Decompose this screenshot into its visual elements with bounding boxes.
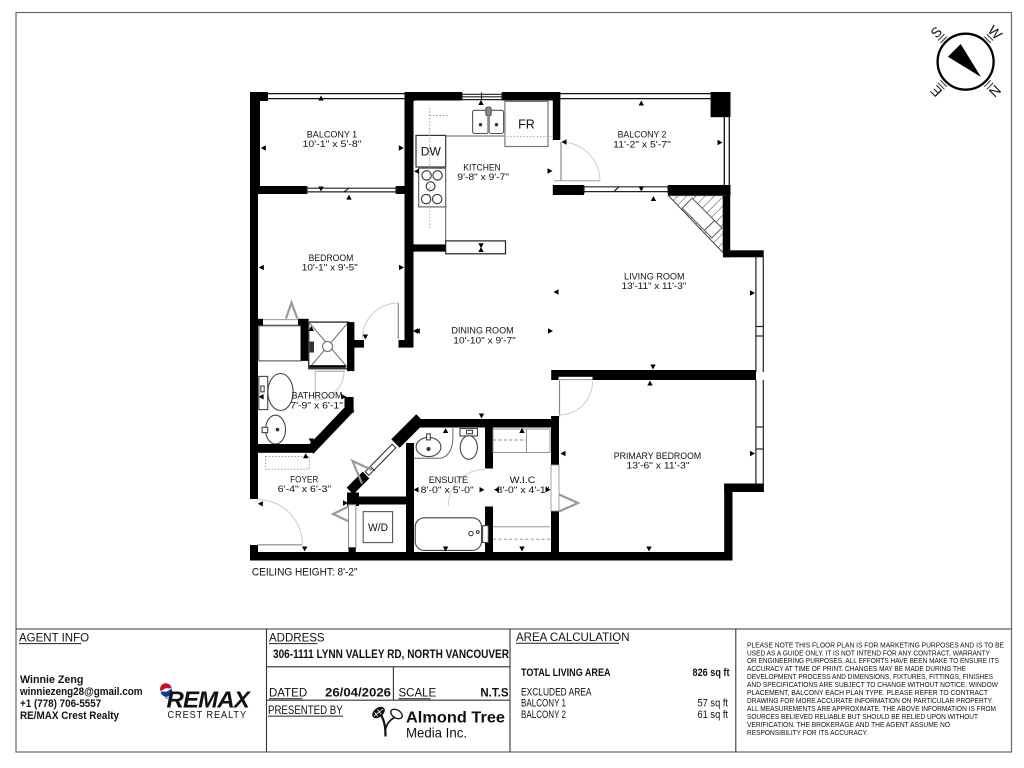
svg-text:57 sq ft: 57 sq ft [698,698,729,710]
svg-text:6'-4" x 6'-3": 6'-4" x 6'-3" [278,483,332,494]
svg-text:26/04/2026: 26/04/2026 [325,688,391,700]
svg-text:N.T.S: N.T.S [480,688,508,700]
svg-text:826 sq ft: 826 sq ft [693,667,730,679]
svg-text:11'-2" x 5'-7": 11'-2" x 5'-7" [613,138,671,149]
svg-text:13'-11" x 11'-3": 13'-11" x 11'-3" [622,280,687,291]
svg-text:TOTAL LIVING AREA: TOTAL LIVING AREA [521,667,611,679]
svg-text:EXCLUDED AREA: EXCLUDED AREA [521,686,592,698]
svg-text:Winnie Zeng: Winnie Zeng [20,674,83,686]
svg-text:306-1111 LYNN VALLEY RD, NORTH: 306-1111 LYNN VALLEY RD, NORTH VANCOUVER [273,649,510,661]
svg-text:BALCONY 1: BALCONY 1 [521,698,566,710]
svg-text:8'-0" x 4'-1": 8'-0" x 4'-1" [497,484,550,495]
svg-text:DW: DW [421,145,442,159]
svg-text:61 sq ft: 61 sq ft [698,709,729,721]
svg-text:10'-1" x 9'-5": 10'-1" x 9'-5" [302,261,358,272]
svg-text:+1 (778) 706-5557: +1 (778) 706-5557 [20,698,101,710]
svg-text:W/D: W/D [368,522,388,534]
svg-text:SCALE: SCALE [399,688,437,700]
svg-text:DATED: DATED [269,688,307,700]
svg-text:7'-9" x 6'-1": 7'-9" x 6'-1" [290,399,343,410]
svg-text:CREST REALTY: CREST REALTY [168,709,248,721]
svg-text:RESPONSIBILITY FOR ITS ACCURAC: RESPONSIBILITY FOR ITS ACCURACY. [747,728,868,737]
svg-text:Media Inc.: Media Inc. [406,725,467,741]
svg-text:10'-1" x 5'-8": 10'-1" x 5'-8" [303,138,362,149]
svg-text:AGENT INFO: AGENT INFO [19,632,89,644]
svg-text:RE/MAX Crest Realty: RE/MAX Crest Realty [20,710,120,722]
svg-text:FR: FR [518,118,535,132]
svg-text:PRESENTED BY: PRESENTED BY [268,705,343,717]
svg-text:BALCONY 2: BALCONY 2 [521,709,566,721]
svg-text:13'-6" x 11'-3": 13'-6" x 11'-3" [627,460,690,471]
svg-text:CEILING HEIGHT: 8'-2": CEILING HEIGHT: 8'-2" [252,567,358,579]
svg-text:9'-8" x 9'-7": 9'-8" x 9'-7" [457,171,509,182]
svg-text:AREA CALCULATION: AREA CALCULATION [516,632,630,644]
svg-text:10'-10" x 9'-7": 10'-10" x 9'-7" [453,334,515,345]
svg-text:ADDRESS: ADDRESS [269,632,325,644]
svg-text:8'-0" x 5'-0": 8'-0" x 5'-0" [421,484,474,495]
svg-text:winniezeng28@gmail.com: winniezeng28@gmail.com [19,686,143,698]
